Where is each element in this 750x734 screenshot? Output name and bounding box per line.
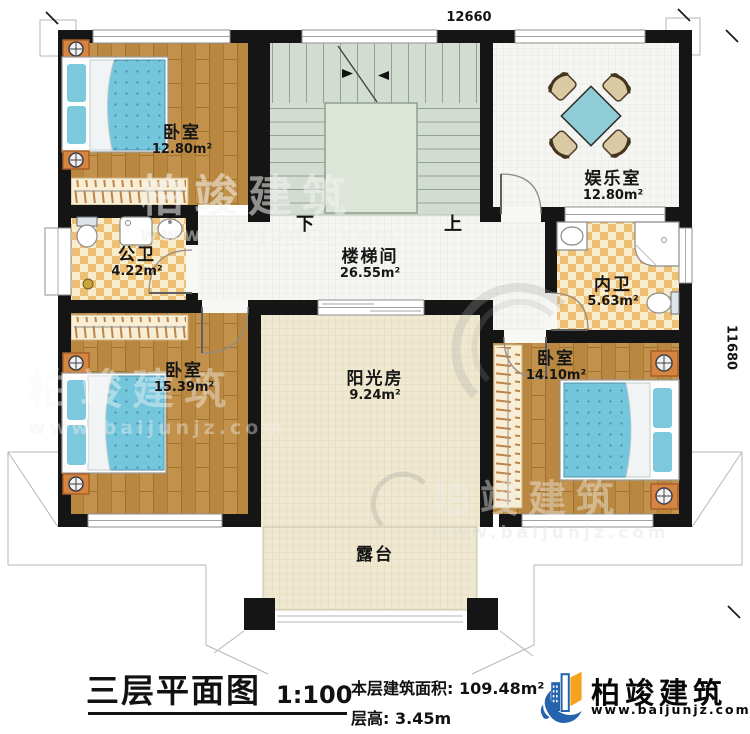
dimension-right-height: 11680 bbox=[724, 315, 739, 381]
window-bottom-left-bedroom bbox=[88, 514, 222, 527]
drawing-title: 三层平面图 bbox=[86, 664, 261, 712]
floor-height-label: 层高: bbox=[351, 709, 389, 728]
pillow bbox=[66, 424, 87, 466]
floor-drain bbox=[83, 279, 93, 289]
toilet-tank bbox=[671, 292, 679, 314]
title-underline bbox=[88, 712, 347, 715]
wardrobe-bottom-left bbox=[71, 315, 188, 340]
sink bbox=[561, 227, 583, 245]
window-left-public-bath bbox=[45, 228, 71, 295]
stair-treads bbox=[270, 43, 480, 215]
window-entertainment-south bbox=[565, 207, 665, 222]
toilet bbox=[77, 225, 97, 247]
hallway-floor bbox=[198, 215, 545, 300]
floor-height-info: 层高: 3.45m bbox=[351, 705, 451, 729]
window-top-stairwell bbox=[302, 30, 437, 43]
wardrobe-bottom-right bbox=[494, 345, 522, 508]
bedroom-top-left-furniture bbox=[62, 40, 168, 169]
floor-area-info: 本层建筑面积: 109.48m² bbox=[351, 675, 544, 699]
hallway-floor-south bbox=[493, 222, 545, 330]
stair-down-label: 下 bbox=[296, 210, 314, 236]
pillow bbox=[652, 387, 673, 429]
window-private-bath-right bbox=[679, 228, 692, 283]
drawing-scale: 1:100 bbox=[276, 681, 352, 709]
floor-area-label: 本层建筑面积: bbox=[351, 679, 453, 698]
pillow bbox=[66, 105, 87, 145]
bedroom-bottom-left-furniture bbox=[62, 353, 166, 494]
terrace-column bbox=[244, 598, 275, 630]
logo-building-bar bbox=[551, 682, 560, 711]
floor-area-value: 109.48m² bbox=[459, 679, 544, 698]
toilet bbox=[647, 293, 671, 313]
logo-building-bar bbox=[562, 674, 569, 711]
dimension-top-width: 12660 bbox=[434, 10, 504, 25]
floor-plan-drawing bbox=[0, 0, 750, 734]
sunroom-floor bbox=[261, 315, 480, 527]
stair-up-label: 上 bbox=[444, 210, 462, 236]
terrace-column bbox=[467, 598, 498, 630]
brand-logo-icon bbox=[540, 664, 588, 726]
washer bbox=[120, 217, 152, 245]
window-top-bedroom bbox=[93, 30, 230, 43]
pillow bbox=[652, 431, 673, 473]
window-sunroom-slider bbox=[318, 300, 424, 315]
floor-height-value: 3.45m bbox=[395, 709, 451, 728]
brand-website: www.baijunjz.com bbox=[591, 702, 750, 717]
corner-shower bbox=[635, 222, 679, 266]
pillow bbox=[66, 63, 87, 103]
wardrobe-top-left bbox=[71, 178, 188, 205]
logo-building-bar-orange bbox=[570, 672, 581, 706]
floor-plan-page: 柏竣建筑 www.baijunjz.com 柏竣建筑 www.baijunjz.… bbox=[0, 0, 750, 734]
stair-landing bbox=[325, 103, 417, 213]
window-top-entertainment bbox=[515, 30, 645, 43]
window-bottom-right-bedroom bbox=[522, 514, 653, 527]
terrace-floor bbox=[263, 527, 477, 610]
pillow bbox=[66, 379, 87, 421]
